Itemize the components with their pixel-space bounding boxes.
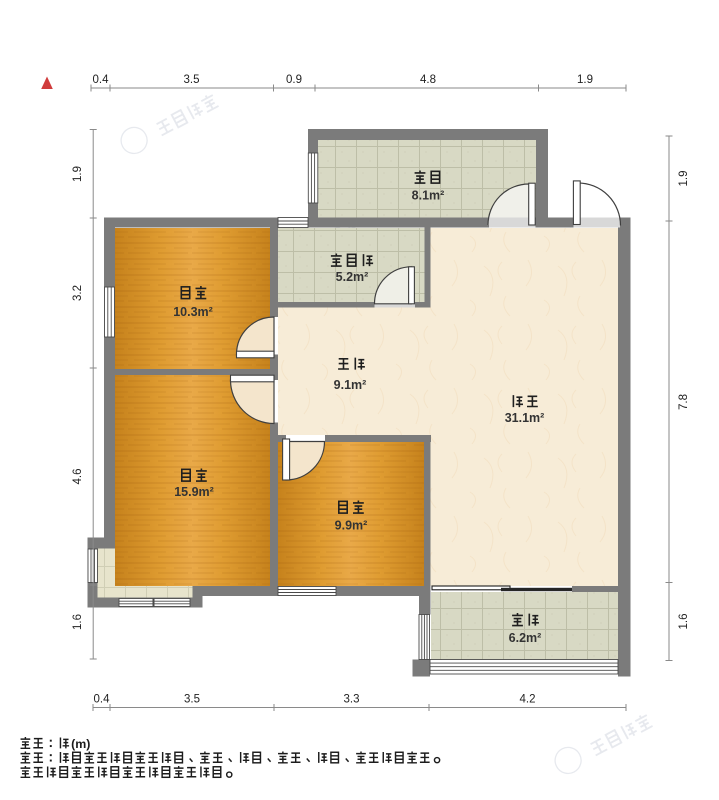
- svg-text:9.9m²: 9.9m²: [335, 519, 368, 533]
- svg-text:1.9: 1.9: [577, 74, 593, 86]
- svg-text:10.3m²: 10.3m²: [173, 305, 213, 319]
- svg-text:9.1m²: 9.1m²: [334, 378, 367, 392]
- svg-text:31.1m²: 31.1m²: [505, 411, 545, 425]
- svg-text:3.2: 3.2: [72, 285, 84, 301]
- svg-text:1.6: 1.6: [678, 614, 690, 630]
- svg-text:4.6: 4.6: [72, 469, 84, 485]
- svg-text:0.4: 0.4: [94, 694, 111, 706]
- svg-text:1.9: 1.9: [678, 171, 690, 187]
- svg-text:4.2: 4.2: [520, 694, 536, 706]
- svg-text:7.8: 7.8: [678, 394, 690, 410]
- svg-text:3.3: 3.3: [344, 694, 360, 706]
- svg-text:3.5: 3.5: [184, 694, 200, 706]
- svg-text:0.9: 0.9: [286, 74, 302, 86]
- svg-text:1.9: 1.9: [72, 166, 84, 182]
- svg-text:0.4: 0.4: [93, 74, 110, 86]
- svg-text:4.8: 4.8: [420, 74, 436, 86]
- svg-text:6.2m²: 6.2m²: [509, 631, 542, 645]
- svg-text:15.9m²: 15.9m²: [174, 485, 214, 499]
- svg-text:1.6: 1.6: [72, 614, 84, 630]
- svg-text:3.5: 3.5: [184, 74, 200, 86]
- svg-text:5.2m²: 5.2m²: [336, 270, 369, 284]
- svg-text:(m): (m): [71, 737, 90, 751]
- svg-text:8.1m²: 8.1m²: [412, 189, 445, 203]
